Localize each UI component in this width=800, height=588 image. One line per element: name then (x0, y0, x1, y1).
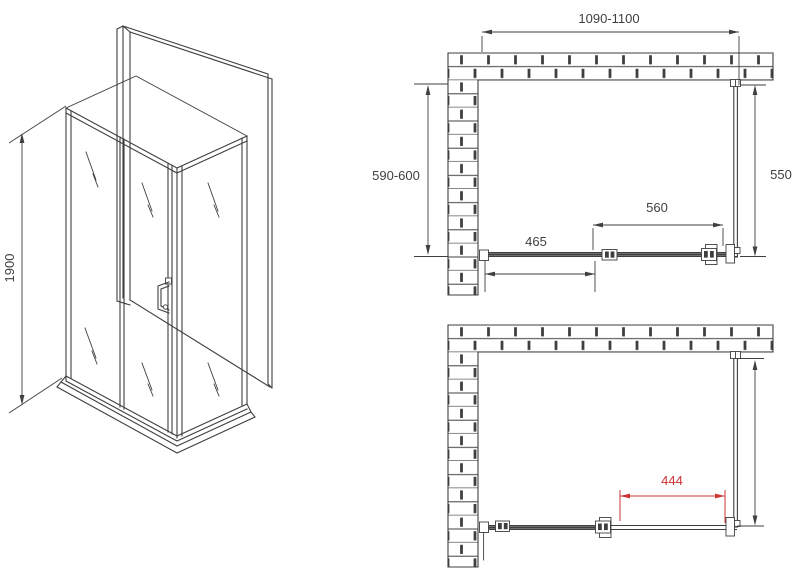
drawing-svg: 1900 (0, 0, 800, 588)
arrow-down-icon (753, 247, 758, 257)
side-glass-panel (731, 80, 741, 258)
arrow-left-icon (620, 494, 630, 499)
roller-bracket (496, 521, 510, 532)
dim-door-label: 560 (646, 200, 668, 215)
iso-shower-enclosure (57, 76, 255, 453)
far-post (242, 136, 247, 406)
wall-profile (480, 250, 489, 261)
dim-side-panel: 550 (740, 85, 792, 257)
arrow-up-icon (20, 133, 25, 143)
roller-bracket (702, 245, 718, 265)
arrow-down-icon (426, 245, 431, 255)
dim-door: 560 (593, 200, 723, 250)
bottom-rail (66, 376, 247, 441)
plan-bottom-view: 444 (448, 325, 773, 567)
dim-height-label: 1900 (2, 254, 17, 283)
corner-profile (726, 245, 740, 264)
arrow-left-icon (593, 223, 603, 228)
arrow-left-icon (485, 272, 495, 277)
dim-side-panel-unlabeled (737, 359, 764, 527)
wall-profile (480, 522, 489, 533)
technical-drawing-canvas: 1900 (0, 0, 800, 588)
sliding-door-assembly-open (480, 518, 741, 561)
dim-opening: 444 (620, 473, 725, 523)
roller-bracket (602, 250, 617, 261)
dim-opening-label: 444 (661, 473, 683, 488)
corner-post (177, 166, 182, 438)
dim-depth-label: 590-600 (372, 168, 420, 183)
back-top-edges (66, 76, 247, 136)
arrow-right-icon (585, 272, 595, 277)
dim-width-label: 1090-1100 (578, 11, 639, 26)
arrow-up-icon (753, 360, 758, 370)
dim-fixed-panel-label: 465 (525, 234, 547, 249)
glass-reflection-marks (85, 152, 219, 396)
iso-wall-right (123, 26, 272, 388)
left-post (66, 108, 71, 380)
dim-fixed-panel: 465 (485, 234, 595, 292)
handle-stile (168, 163, 172, 434)
door-handle-icon (158, 278, 172, 313)
top-rail (66, 108, 247, 173)
arrow-left-icon (482, 30, 492, 35)
side-glass-panel (731, 352, 741, 528)
sliding-door-assembly (480, 245, 741, 265)
dim-height: 1900 (2, 106, 66, 413)
iso-view: 1900 (2, 26, 272, 453)
arrow-right-icon (715, 494, 725, 499)
arrow-down-icon (753, 516, 758, 526)
plan-top-view: 1090-1100 590-600 550 560 465 (372, 11, 792, 295)
arrow-right-icon (729, 30, 739, 35)
dim-side-panel-label: 550 (770, 167, 792, 182)
arrow-up-icon (753, 85, 758, 95)
corner-profile (726, 518, 740, 537)
roller-bracket (596, 518, 612, 538)
dim-depth: 590-600 (372, 84, 448, 257)
arrow-up-icon (426, 85, 431, 95)
arrow-right-icon (713, 223, 723, 228)
